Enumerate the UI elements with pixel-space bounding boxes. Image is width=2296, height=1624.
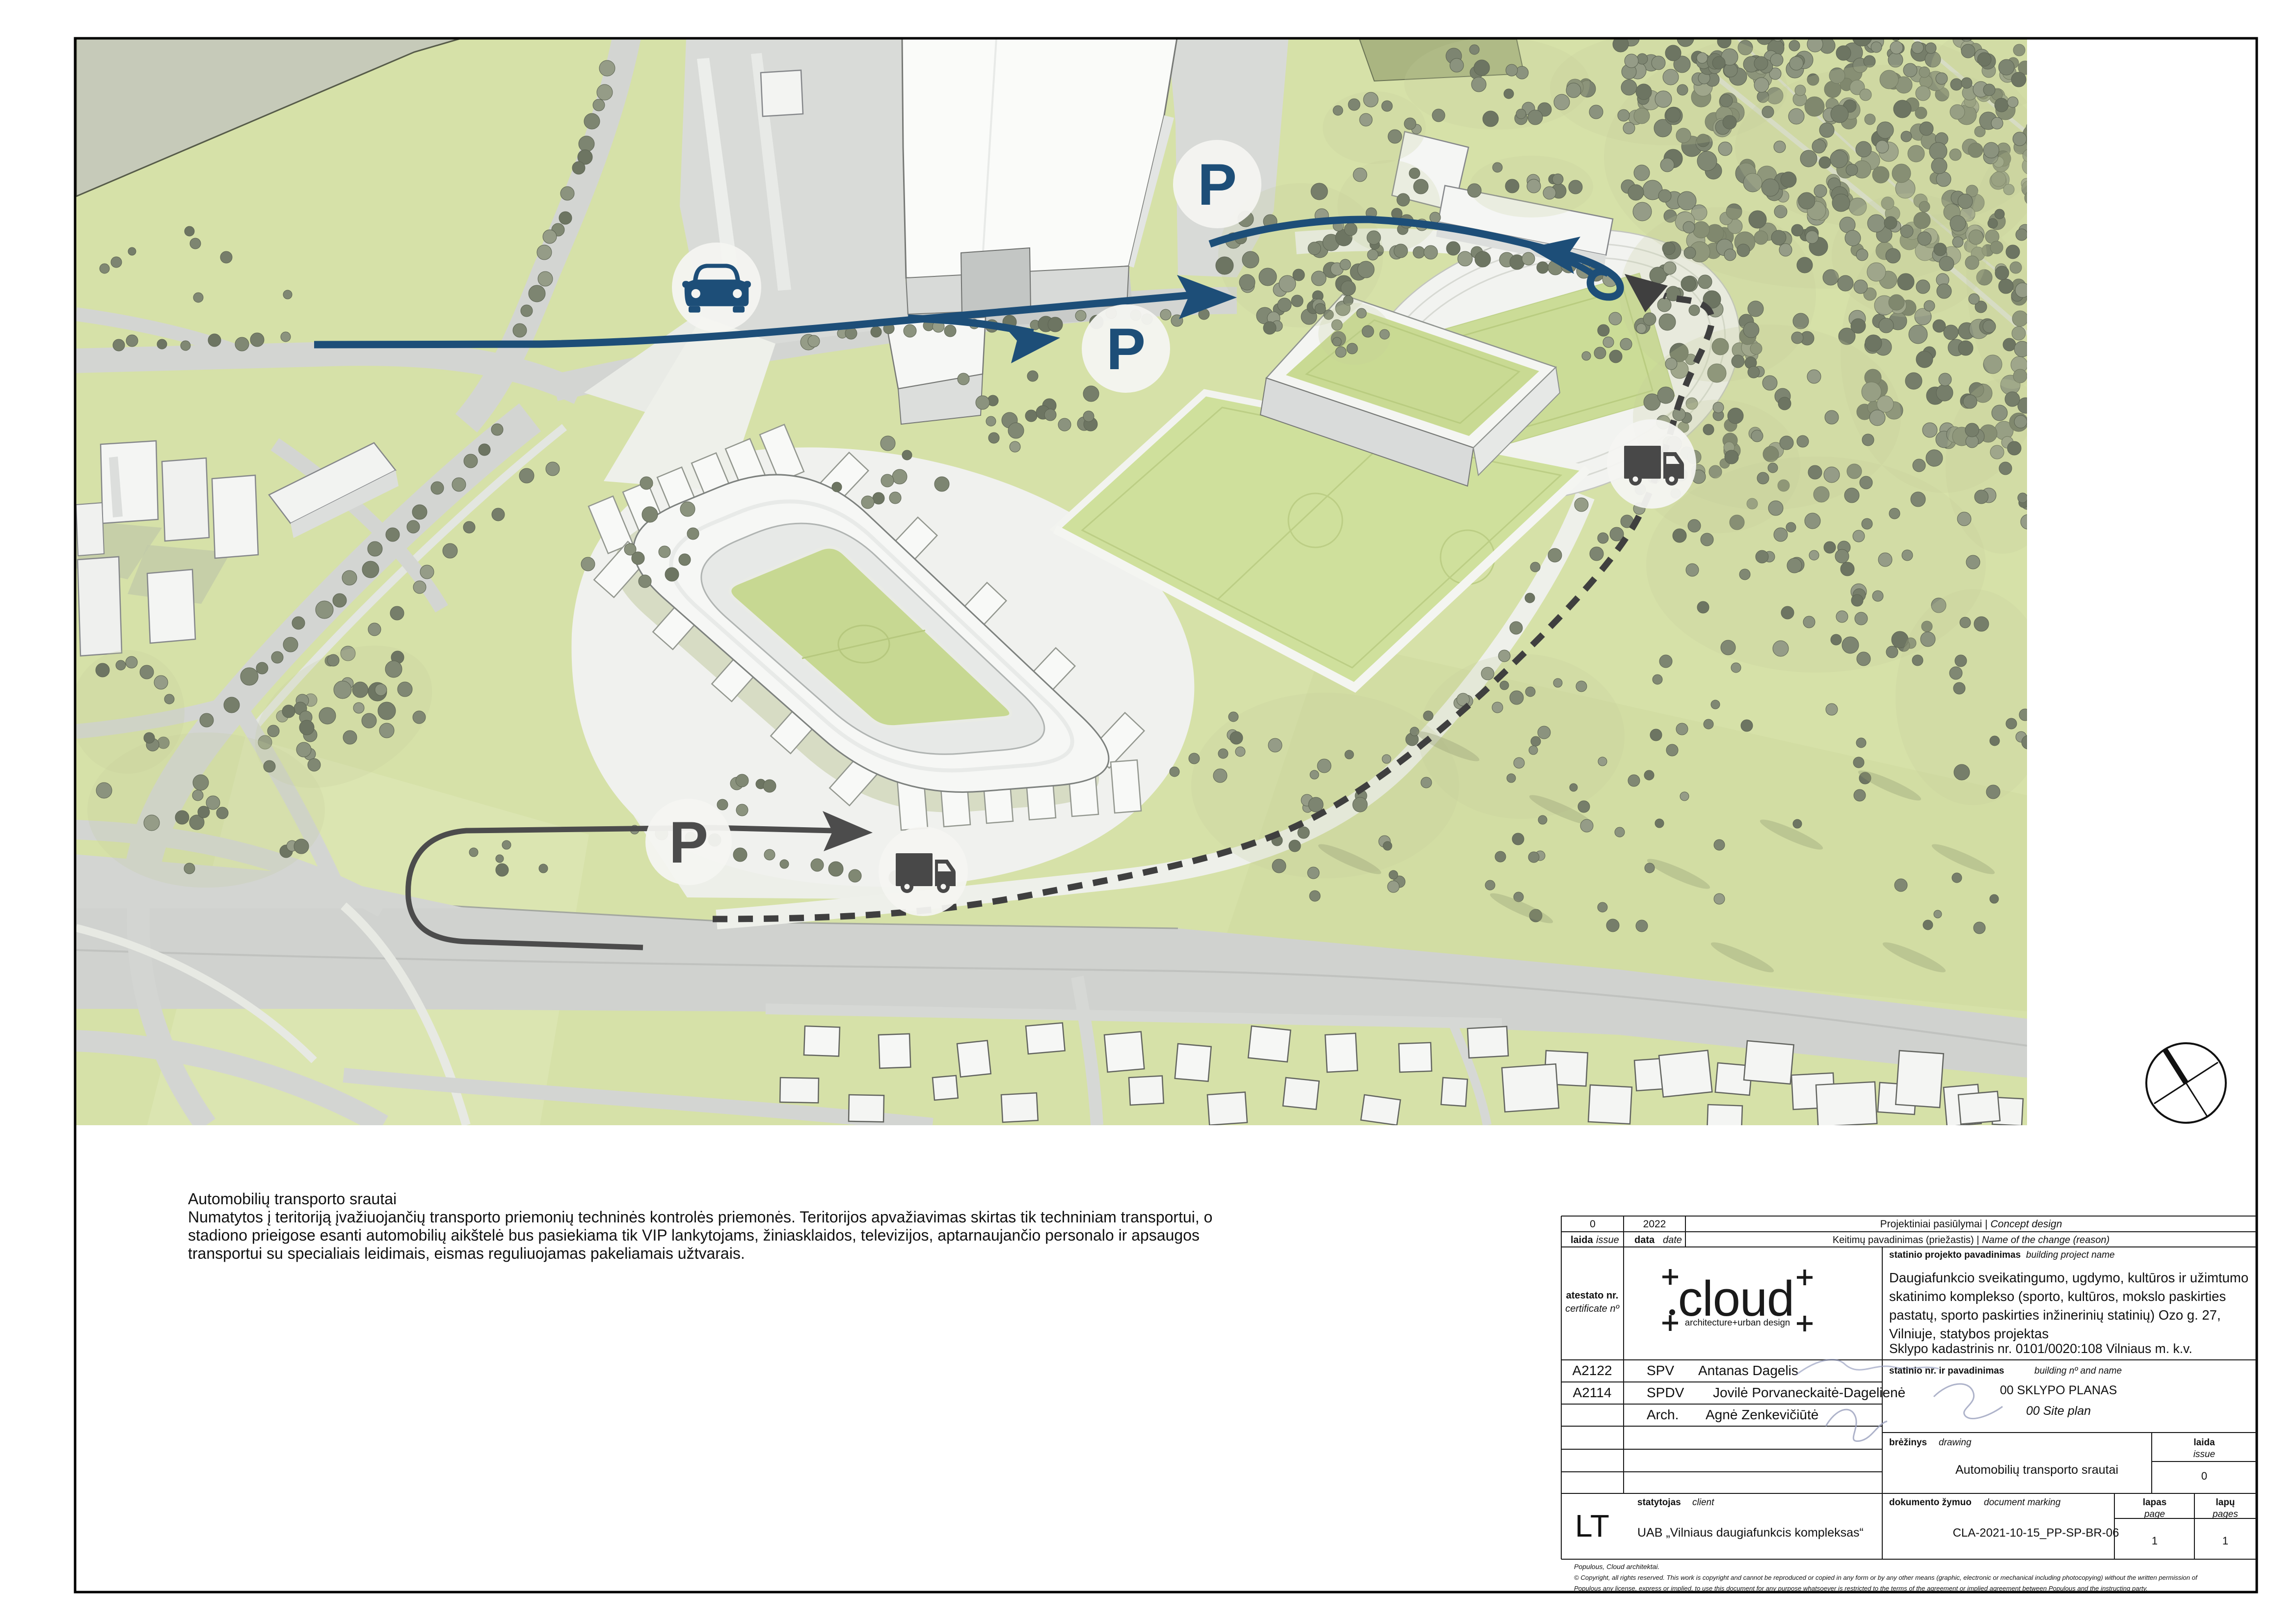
svg-text:client: client [1692,1497,1714,1508]
svg-text:building nº and name: building nº and name [2034,1366,2122,1376]
svg-text:0: 0 [2201,1470,2207,1482]
svg-text:Keitimų pavadinimas (priežasti: Keitimų pavadinimas (priežastis) | Name … [1833,1235,2109,1245]
svg-text:CLA-2021-10-15_PP-SP-BR-06: CLA-2021-10-15_PP-SP-BR-06 [1953,1526,2119,1540]
svg-text:SPV: SPV [1647,1363,1674,1378]
svg-text:0: 0 [1590,1218,1596,1230]
svg-text:brėžinys: brėžinys [1889,1437,1927,1448]
svg-text:Jovilė Porvaneckaitė-Dagelienė: Jovilė Porvaneckaitė-Dagelienė [1713,1385,1905,1400]
svg-text:Vilniuje, statybos projektas: Vilniuje, statybos projektas [1889,1326,2049,1341]
svg-text:pages: pages [2212,1509,2238,1519]
svg-text:data: data [1634,1235,1655,1245]
svg-text:P: P [1198,152,1237,217]
svg-text:statytojas: statytojas [1637,1497,1681,1508]
svg-text:P: P [1106,316,1146,382]
svg-text:Automobilių transporto srautai: Automobilių transporto srautai [188,1190,397,1208]
svg-text:lapas: lapas [2143,1497,2167,1508]
svg-text:transportui su specialiais lei: transportui su specialiais leidimais, ei… [188,1245,745,1262]
svg-text:Arch.: Arch. [1647,1407,1679,1422]
svg-text:LT: LT [1575,1508,1609,1543]
svg-text:dokumento žymuo: dokumento žymuo [1889,1497,1972,1508]
svg-text:UAB „Vilniaus daugiafunkcis ko: UAB „Vilniaus daugiafunkcis kompleksas“ [1637,1526,1864,1540]
svg-text:document marking: document marking [1984,1497,2061,1508]
svg-text:building project name: building project name [2026,1250,2115,1260]
svg-text:laida: laida [1571,1235,1593,1245]
svg-text:issue: issue [2193,1449,2215,1460]
svg-text:architecture+urban design: architecture+urban design [1685,1317,1790,1327]
svg-text:1: 1 [2222,1535,2228,1547]
svg-text:laida: laida [2193,1437,2215,1448]
svg-text:2022: 2022 [1643,1218,1666,1230]
svg-text:certificate nº: certificate nº [1565,1303,1620,1314]
svg-text:A2114: A2114 [1573,1385,1612,1400]
svg-text:pastatų, sporto paskirties inž: pastatų, sporto paskirties inžinerinių s… [1889,1307,2221,1323]
svg-text:Sklypo kadastrinis nr. 0101/00: Sklypo kadastrinis nr. 0101/0020:108 Vil… [1889,1341,2192,1356]
svg-text:statinio nr. ir pavadinimas: statinio nr. ir pavadinimas [1889,1366,2004,1376]
svg-text:1: 1 [2152,1535,2158,1547]
svg-text:drawing: drawing [1939,1437,1972,1448]
svg-text:issue: issue [1596,1235,1619,1245]
svg-text:Automobilių transporto srautai: Automobilių transporto srautai [1955,1463,2118,1477]
svg-text:00 SKLYPO PLANAS: 00 SKLYPO PLANAS [2000,1383,2117,1397]
svg-text:00 Site plan: 00 Site plan [2026,1404,2091,1418]
svg-text:SPDV: SPDV [1647,1385,1684,1400]
svg-text:Antanas Dagelis: Antanas Dagelis [1698,1363,1798,1378]
svg-text:Numatytos į teritoriją įvažiuo: Numatytos į teritoriją įvažiuojančių tra… [188,1208,1212,1226]
svg-text:Populous, Cloud architektai.: Populous, Cloud architektai. [1574,1563,1659,1570]
svg-text:stadiono prieigose esanti auto: stadiono prieigose esanti automobilių ai… [188,1226,1200,1244]
svg-text:© Copyright, all rights reserv: © Copyright, all rights reserved. This w… [1574,1574,2198,1581]
svg-text:A2122: A2122 [1573,1363,1612,1378]
svg-text:P: P [669,810,708,875]
svg-text:Projektiniai pasiūlymai | Conc: Projektiniai pasiūlymai | Concept design [1880,1218,2062,1230]
svg-text:Populous any license, express: Populous any license, express or implied… [1574,1585,2148,1592]
svg-text:Agnė Zenkevičiūtė: Agnė Zenkevičiūtė [1706,1407,1818,1422]
svg-text:statinio projekto pavadinimas: statinio projekto pavadinimas [1889,1250,2021,1260]
svg-text:atestato nr.: atestato nr. [1566,1290,1619,1301]
svg-text:skatinimo komplekso (sporto, k: skatinimo komplekso (sporto, kultūros, m… [1889,1289,2226,1304]
svg-text:lapų: lapų [2216,1497,2235,1508]
svg-text:Daugiafunkcio sveikatingumo, u: Daugiafunkcio sveikatingumo, ugdymo, kul… [1889,1270,2248,1285]
svg-text:date: date [1663,1235,1682,1245]
svg-text:page: page [2144,1509,2165,1519]
